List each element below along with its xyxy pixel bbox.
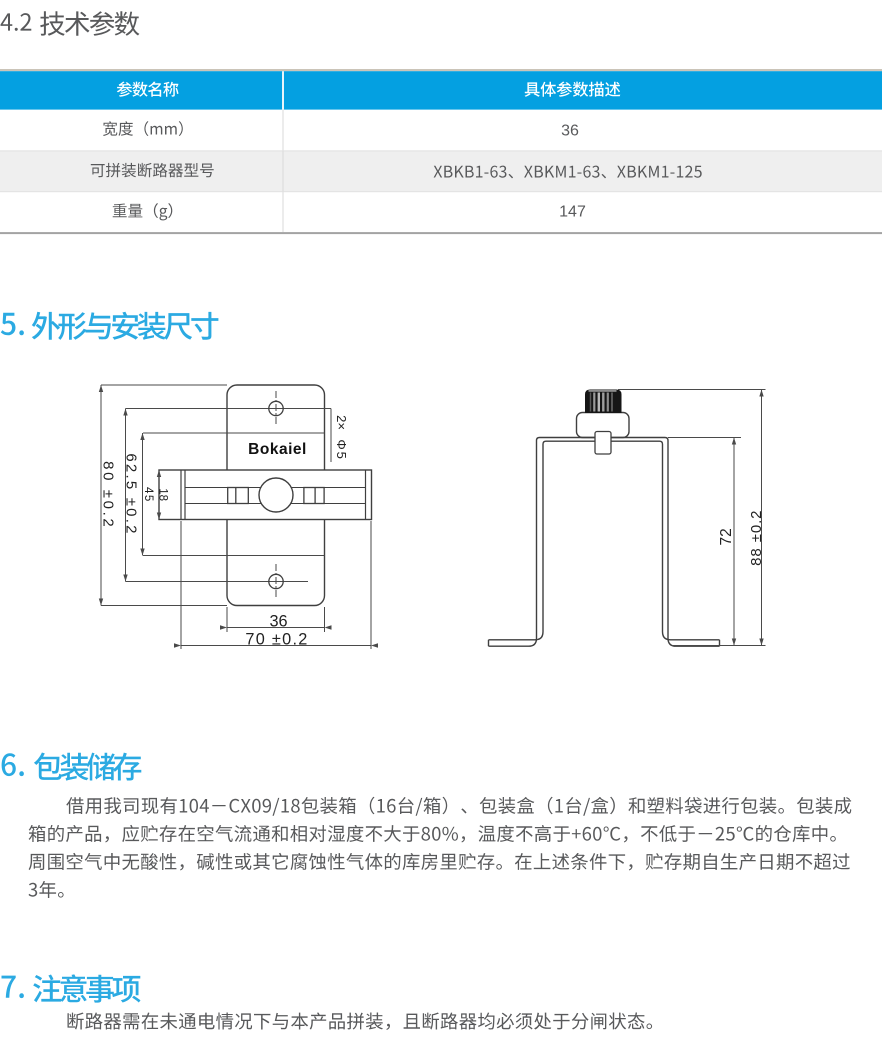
svg-text:62.5 ±0.2: 62.5 ±0.2 (123, 453, 140, 535)
svg-text:18: 18 (157, 488, 169, 501)
svg-text:36: 36 (561, 123, 579, 140)
svg-text:72: 72 (718, 528, 735, 545)
svg-text:70 ±0.2: 70 ±0.2 (245, 630, 308, 648)
svg-text:88 ±0.2: 88 ±0.2 (748, 510, 765, 566)
svg-text:36: 36 (269, 613, 287, 631)
svg-text:2×: 2× (334, 415, 349, 430)
svg-text:45: 45 (142, 487, 154, 503)
svg-text:Φ5: Φ5 (334, 439, 349, 460)
svg-text:147: 147 (559, 204, 586, 221)
svg-text:80 ±0.2: 80 ±0.2 (100, 461, 117, 529)
svg-text:Bokaiel: Bokaiel (248, 441, 307, 458)
